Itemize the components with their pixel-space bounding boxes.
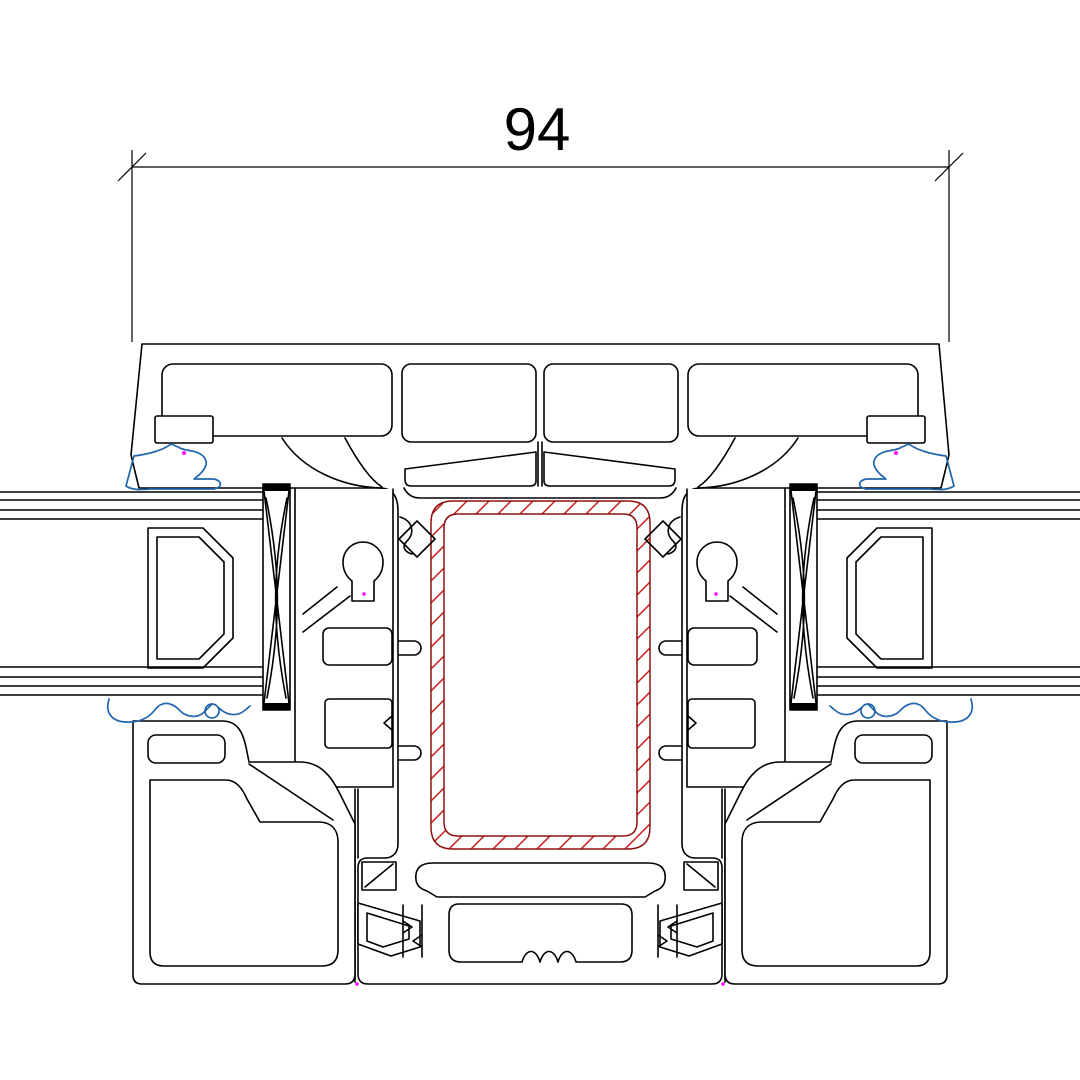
reference-point (355, 982, 358, 985)
interlock-outline (295, 489, 393, 787)
glazing-unit (0, 492, 262, 695)
glazing-spacer-outer (148, 528, 233, 668)
glazing-spacer-inner (157, 537, 224, 659)
cad-drawing: 94 (0, 0, 1080, 1080)
reference-point (362, 592, 365, 595)
packer-cap-bottom (263, 703, 290, 710)
dimension-94: 94 (118, 96, 963, 342)
cad-viewport: 94 (0, 0, 1080, 1080)
dimension-value: 94 (504, 96, 571, 163)
glass-pane-inner (0, 667, 262, 695)
frame-track-block (155, 416, 213, 443)
glass-pane-outer (0, 492, 262, 519)
gasket-bulb (205, 704, 219, 718)
glazing-packer (263, 484, 290, 710)
sash-gasket-bottom (108, 699, 250, 722)
reference-point (182, 451, 186, 455)
packer-cap-top (263, 484, 290, 491)
